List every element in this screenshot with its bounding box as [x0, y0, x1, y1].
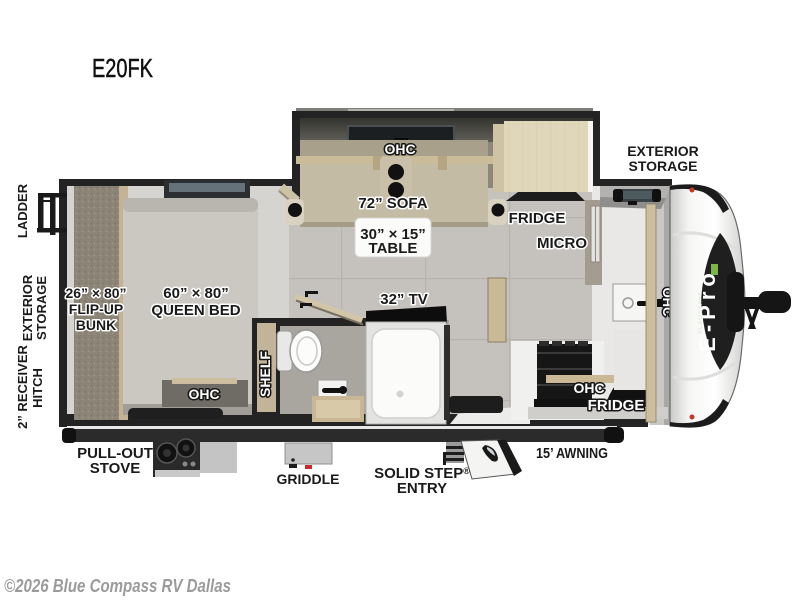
- svg-text:STORAGE: STORAGE: [629, 158, 698, 174]
- svg-text:STOVE: STOVE: [90, 460, 141, 477]
- svg-text:HITCH: HITCH: [30, 368, 45, 408]
- svg-text:ENTRY: ENTRY: [397, 480, 447, 497]
- svg-text:FRIDGE: FRIDGE: [509, 210, 566, 227]
- svg-text:SHELF: SHELF: [257, 351, 273, 397]
- svg-text:STORAGE: STORAGE: [34, 276, 49, 340]
- svg-text:TABLE: TABLE: [369, 240, 418, 257]
- svg-text:FLIP-UP: FLIP-UP: [69, 301, 123, 317]
- svg-text:MICRO: MICRO: [537, 235, 587, 252]
- svg-text:©2026 Blue Compass RV Dallas: ©2026 Blue Compass RV Dallas: [4, 576, 231, 596]
- svg-text:60” × 80”: 60” × 80”: [163, 285, 228, 302]
- svg-text:OHC: OHC: [573, 380, 604, 396]
- svg-text:2” RECEIVER: 2” RECEIVER: [15, 344, 30, 428]
- svg-text:32” TV: 32” TV: [380, 291, 428, 308]
- svg-text:FRIDGE: FRIDGE: [588, 397, 645, 414]
- svg-text:EXTERIOR: EXTERIOR: [20, 274, 35, 341]
- svg-text:LADDER: LADDER: [15, 183, 30, 238]
- svg-text:BUNK: BUNK: [76, 317, 116, 333]
- svg-text:FLAGSTAFF: FLAGSTAFF: [698, 290, 704, 333]
- svg-text:OHC: OHC: [384, 141, 415, 157]
- svg-text:QUEEN BED: QUEEN BED: [151, 302, 240, 319]
- svg-text:26” × 80”: 26” × 80”: [65, 285, 126, 301]
- svg-text:15’ AWNING: 15’ AWNING: [536, 445, 608, 462]
- svg-text:72” SOFA: 72” SOFA: [358, 195, 427, 212]
- svg-text:EXTERIOR: EXTERIOR: [627, 143, 699, 159]
- svg-text:E20FK: E20FK: [92, 53, 153, 83]
- svg-text:GRIDDLE: GRIDDLE: [277, 471, 340, 487]
- svg-text:OHC: OHC: [188, 386, 219, 402]
